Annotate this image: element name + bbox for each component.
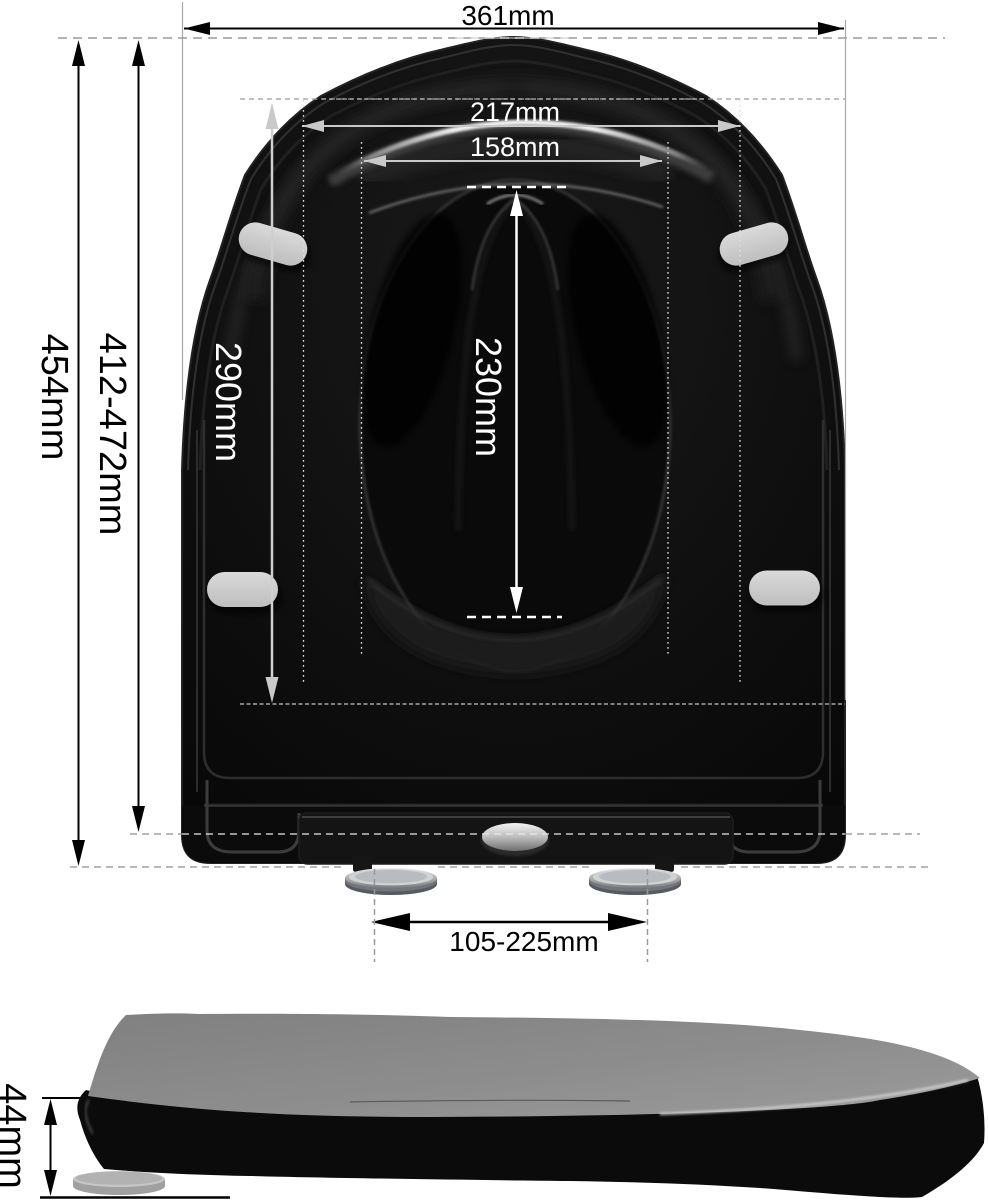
svg-text:290mm: 290mm <box>208 342 249 462</box>
svg-text:230mm: 230mm <box>468 337 509 457</box>
svg-text:412-472mm: 412-472mm <box>91 333 133 536</box>
svg-text:105-225mm: 105-225mm <box>449 926 598 957</box>
svg-text:158mm: 158mm <box>470 132 560 162</box>
svg-text:361mm: 361mm <box>461 0 554 31</box>
svg-text:44mm: 44mm <box>0 1083 33 1189</box>
svg-text:454mm: 454mm <box>33 334 75 461</box>
svg-text:217mm: 217mm <box>470 97 560 127</box>
